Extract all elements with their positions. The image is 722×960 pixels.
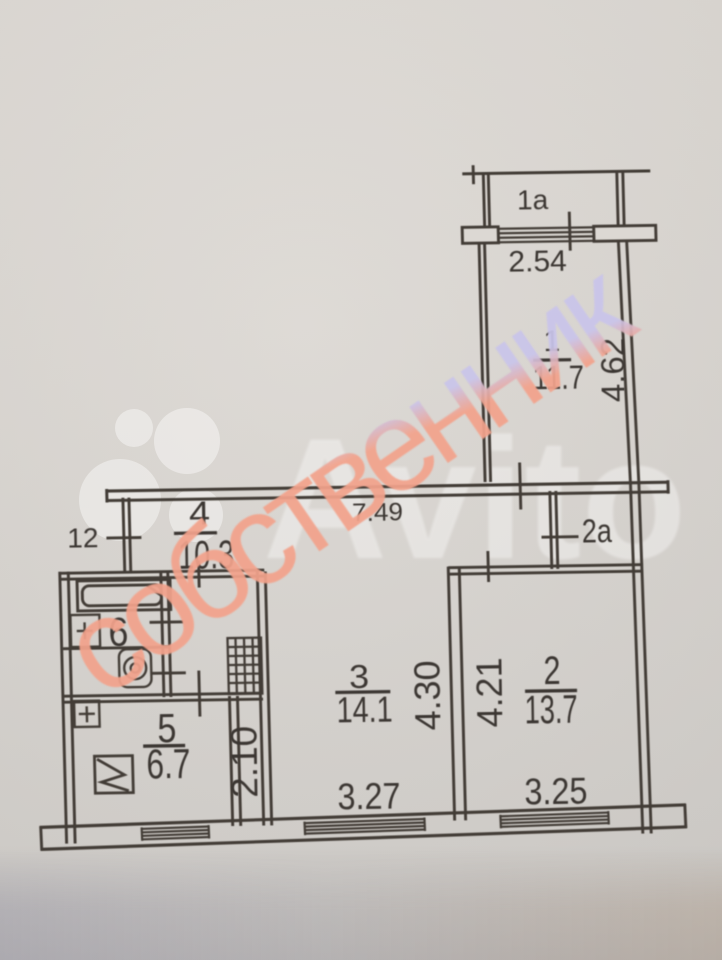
svg-text:4.21: 4.21 bbox=[468, 657, 510, 728]
svg-text:12: 12 bbox=[67, 522, 99, 553]
svg-text:3.27: 3.27 bbox=[337, 775, 401, 817]
svg-text:6.7: 6.7 bbox=[146, 740, 191, 788]
svg-text:3.25: 3.25 bbox=[524, 770, 588, 812]
svg-text:2.10: 2.10 bbox=[223, 726, 265, 799]
svg-text:2: 2 bbox=[543, 649, 561, 693]
svg-text:14.1: 14.1 bbox=[336, 689, 393, 731]
svg-text:2a: 2a bbox=[582, 512, 613, 549]
svg-text:13.7: 13.7 bbox=[524, 688, 578, 733]
svg-text:1a: 1a bbox=[517, 184, 549, 215]
svg-text:4.30: 4.30 bbox=[406, 660, 448, 731]
